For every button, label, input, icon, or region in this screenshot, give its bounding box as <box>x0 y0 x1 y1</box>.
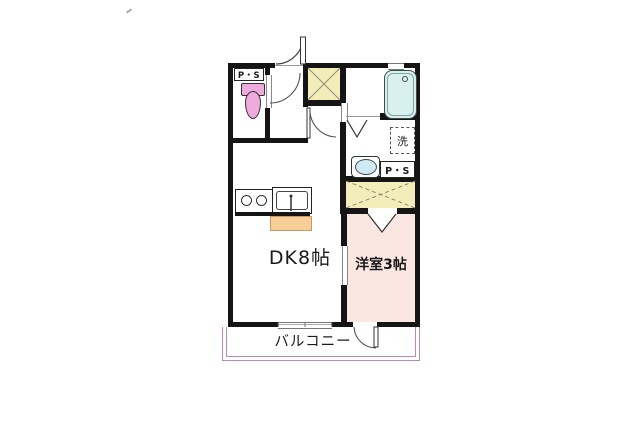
dk-room-label: DK8帖 <box>250 243 350 269</box>
toilet-door-arc <box>270 73 300 103</box>
bathroom-folding-door-icon <box>347 120 367 137</box>
balcony-door-leaf <box>374 327 378 347</box>
kitchen-faucet-head <box>290 195 293 198</box>
door-and-hatch-layer <box>0 0 640 441</box>
entrance-door-leaf <box>301 37 306 64</box>
hall-door-arc <box>310 109 336 137</box>
floorplan-canvas: P・S 洗 P・S <box>0 0 640 441</box>
balcony-label: バルコニー <box>268 331 358 349</box>
entrance-door-arc <box>276 37 303 64</box>
western-room-label: 洋室3帖 <box>348 254 414 273</box>
western-room-folding-door-icon <box>368 214 396 232</box>
